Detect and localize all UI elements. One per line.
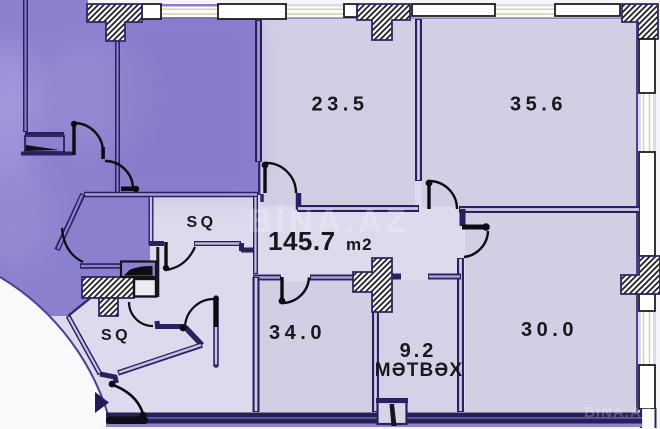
svg-text:SQ: SQ (101, 327, 131, 344)
svg-text:23.5: 23.5 (312, 94, 369, 116)
svg-text:MƏTBƏX: MƏTBƏX (375, 360, 464, 381)
svg-text:9.2: 9.2 (400, 340, 437, 362)
svg-text:SQ: SQ (186, 214, 216, 231)
svg-text:34.0: 34.0 (269, 322, 326, 344)
svg-text:35.6: 35.6 (510, 94, 567, 116)
svg-text:BİNA.AZ: BİNA.AZ (248, 202, 410, 239)
svg-text:BINA.AZ: BINA.AZ (584, 404, 652, 421)
svg-text:30.0: 30.0 (521, 319, 578, 341)
